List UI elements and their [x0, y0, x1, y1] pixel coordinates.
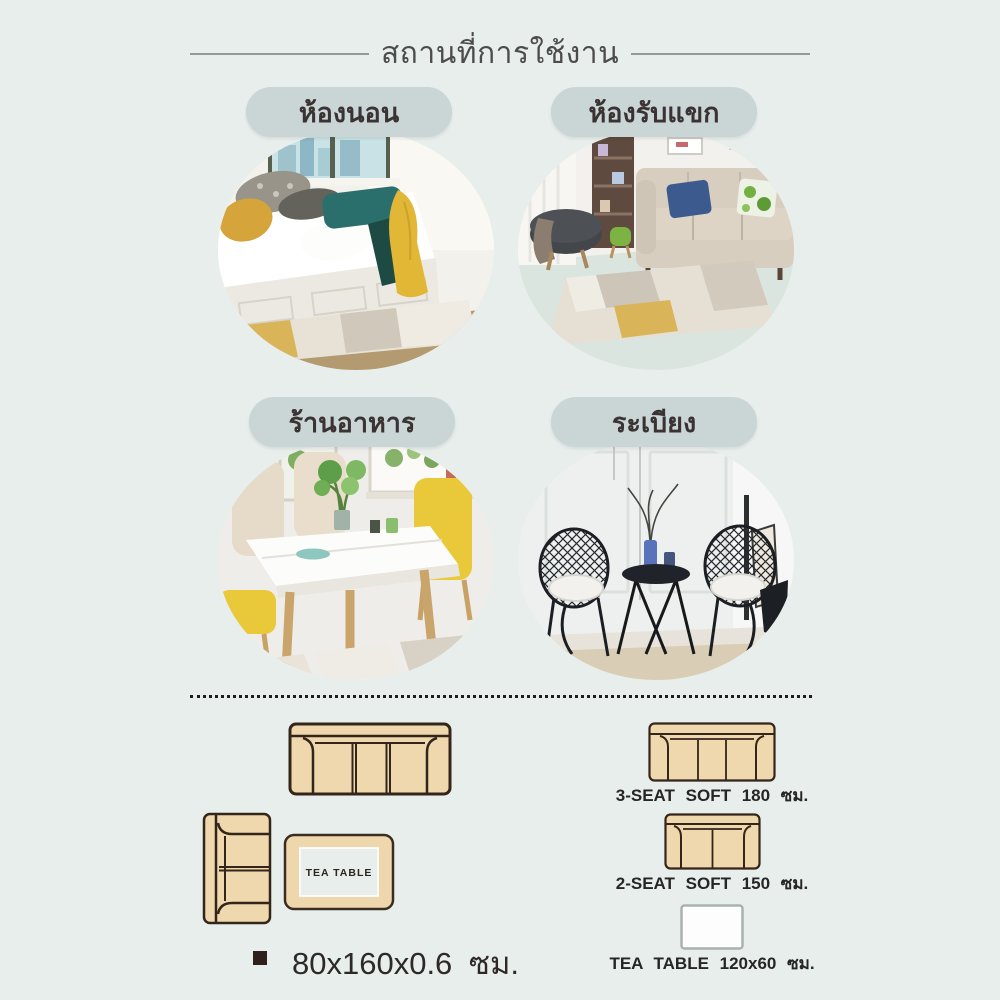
restaurant-scene	[218, 440, 494, 680]
sofa-3seat-small-icon	[648, 722, 776, 782]
label-2seat: 2-SEAT SOFT 150 ซม.	[616, 875, 809, 892]
living-room-photo	[518, 130, 794, 370]
label-tea-table: TEA TABLE 120x60 ซม.	[609, 955, 814, 972]
bedroom-scene	[218, 130, 494, 370]
leaf-pillow-icon	[736, 178, 778, 218]
tea-table-small-icon	[680, 904, 744, 950]
header-rule-right	[631, 53, 810, 55]
blue-pillow-icon	[666, 179, 712, 219]
dotted-divider	[190, 695, 812, 698]
balcony-photo	[518, 440, 794, 680]
sofa-icon	[636, 168, 794, 280]
section-header: สถานที่การใช้งาน	[190, 30, 810, 77]
label-pill-living-room: ห้องรับแขก	[551, 87, 757, 137]
sofa-2seat-side-icon	[202, 812, 272, 925]
balcony-scene	[518, 440, 794, 680]
sofa-2seat-small-icon	[664, 813, 761, 870]
sofa-3seat-top-icon	[288, 722, 452, 796]
yellow-stool-icon	[218, 590, 276, 664]
label-pill-balcony: ระเบียง	[551, 397, 757, 447]
label-pill-bedroom: ห้องนอน	[246, 87, 452, 137]
size-legend: 3-SEAT SOFT 180 ซม. 2-SEAT SOFT 150 ซม. …	[622, 722, 802, 981]
rug-size-text: 80x160x0.6 ซม.	[292, 938, 519, 988]
header-rule-left	[190, 53, 369, 55]
bedroom-photo	[218, 130, 494, 370]
living-room-scene	[518, 130, 794, 370]
square-bullet-icon	[253, 951, 267, 965]
tea-table-text: TEA TABLE	[306, 867, 373, 879]
label-pill-restaurant: ร้านอาหาร	[249, 397, 455, 447]
label-3seat: 3-SEAT SOFT 180 ซม.	[616, 787, 809, 804]
product-usage-infographic: สถานที่การใช้งาน ห้องนอน ห้องรับแขก ร้าน…	[0, 0, 1000, 1000]
tea-table-top-icon: TEA TABLE	[283, 833, 395, 911]
page-title: สถานที่การใช้งาน	[377, 30, 623, 77]
hanging-bag-icon	[760, 580, 788, 638]
restaurant-photo	[218, 440, 494, 680]
